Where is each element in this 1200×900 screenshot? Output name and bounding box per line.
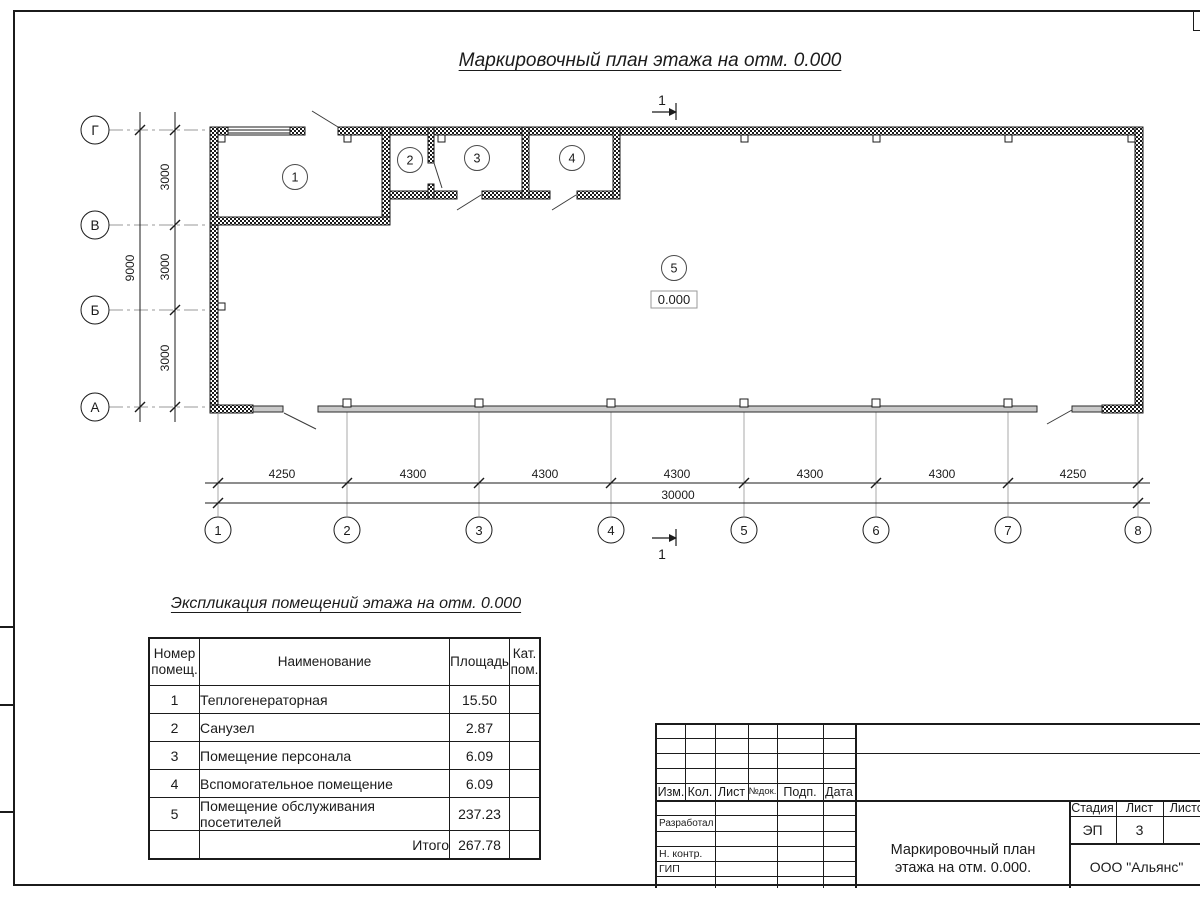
- sheet-value: 3: [1116, 817, 1163, 843]
- wall-segment: [428, 127, 434, 163]
- title-block: Изм. Кол. Лист №док. Подп. Дата Разработ…: [655, 723, 1200, 888]
- col-header-name: Наименование: [200, 638, 450, 686]
- wall-segment: [338, 127, 1143, 135]
- axis-label: 2: [343, 523, 350, 538]
- room-name: Помещение персонала: [200, 742, 450, 770]
- col-header-number: Номер помещ.: [149, 638, 200, 686]
- row-axis-labels: Г В Б А: [90, 123, 99, 415]
- table-row: 4 Вспомогательное помещение 6.09: [149, 770, 540, 798]
- rev-header-podp: Подп.: [777, 783, 823, 800]
- room-area: 15.50: [450, 686, 510, 714]
- window: [228, 127, 290, 135]
- axis-label: 4: [607, 523, 614, 538]
- axis-label: В: [90, 218, 99, 233]
- section-label: 1: [658, 546, 666, 562]
- table-row: 2 Санузел 2.87: [149, 714, 540, 742]
- rev-header-list: Лист: [715, 783, 748, 800]
- axis-label: 8: [1134, 523, 1141, 538]
- room-number: 4: [149, 770, 200, 798]
- dim-label: 3000: [158, 253, 172, 280]
- dim-total-label: 9000: [123, 254, 137, 281]
- wall-segment: [210, 405, 253, 413]
- wall-segment: [210, 127, 218, 413]
- axis-label: 5: [740, 523, 747, 538]
- rev-header-izm: Изм.: [657, 783, 685, 800]
- section-label: 1: [658, 92, 666, 108]
- axis-label: 3: [475, 523, 482, 538]
- role-gip: ГИП: [659, 862, 717, 876]
- door-swing: [284, 413, 316, 429]
- dim-label: 4300: [664, 467, 691, 481]
- wall-segment: [613, 127, 620, 199]
- door-swing: [552, 195, 576, 210]
- table-row: 3 Помещение персонала 6.09: [149, 742, 540, 770]
- room-category: [510, 742, 541, 770]
- wall-segment: [290, 127, 305, 135]
- dim-label: 4300: [400, 467, 427, 481]
- door-swing: [1047, 410, 1072, 424]
- stage-value: ЭП: [1069, 817, 1116, 843]
- section-mark-bottom: [652, 529, 677, 546]
- wall-segment: [390, 191, 457, 199]
- role-developer: Разработал: [659, 816, 715, 831]
- door-swing: [434, 163, 442, 188]
- company-name: ООО "Альянс": [1071, 845, 1200, 888]
- role-ncontrol: Н. контр.: [659, 847, 717, 861]
- wall-segment: [522, 127, 529, 199]
- table-row: 5 Помещение обслуживания посетителей 237…: [149, 798, 540, 831]
- door-swing: [457, 195, 481, 210]
- room-marker: 1: [292, 171, 299, 185]
- col-header-area: Площадь: [450, 638, 510, 686]
- room-number: 1: [149, 686, 200, 714]
- room-marker: 2: [407, 154, 414, 168]
- dimension-labels: 4250 4300 4300 4300 4300 4300 4250 30000…: [123, 163, 1087, 502]
- total-label: Итого: [200, 831, 450, 860]
- axis-label: Б: [91, 303, 100, 318]
- dim-label: 4300: [929, 467, 956, 481]
- room-name: Санузел: [200, 714, 450, 742]
- wall-segment: [1102, 405, 1143, 413]
- elevation-value: 0.000: [658, 292, 691, 307]
- stage-header: Стадия: [1069, 801, 1116, 815]
- elevation-mark: 0.000: [651, 291, 697, 308]
- room-area: 6.09: [450, 742, 510, 770]
- axis-label: 6: [872, 523, 879, 538]
- dim-label: 4250: [1060, 467, 1087, 481]
- room-area: 2.87: [450, 714, 510, 742]
- table-row: 1 Теплогенераторная 15.50: [149, 686, 540, 714]
- room-category: [510, 714, 541, 742]
- axis-label: А: [90, 400, 99, 415]
- room-number: 3: [149, 742, 200, 770]
- document-title: Маркировочный план этажа на отм. 0.000.: [857, 833, 1069, 885]
- room-name: Помещение обслуживания посетителей: [200, 798, 450, 831]
- rev-header-kol: Кол.: [685, 783, 715, 800]
- sheets-header: Листов: [1163, 801, 1200, 815]
- margin-tick: [0, 704, 13, 706]
- table-total-row: Итого 267.78: [149, 831, 540, 860]
- room-marker-bubbles: [283, 146, 687, 281]
- room-area: 6.09: [450, 770, 510, 798]
- room-name: Теплогенераторная: [200, 686, 450, 714]
- wall-segment: [210, 217, 390, 225]
- room-category: [510, 770, 541, 798]
- room-category: [510, 686, 541, 714]
- rev-header-data: Дата: [823, 783, 855, 800]
- dim-label: 4250: [269, 467, 296, 481]
- axis-label: Г: [91, 123, 99, 138]
- schedule-table: Номер помещ. Наименование Площадь Кат. п…: [148, 637, 541, 860]
- room-marker: 3: [474, 152, 481, 166]
- dim-label: 4300: [797, 467, 824, 481]
- room-number: 2: [149, 714, 200, 742]
- dim-label: 3000: [158, 344, 172, 371]
- row-axis-bubbles: [81, 116, 109, 421]
- schedule-header-row: Номер помещ. Наименование Площадь Кат. п…: [149, 638, 540, 686]
- dim-label: 3000: [158, 163, 172, 190]
- col-header-category: Кат. пом.: [510, 638, 541, 686]
- room-name: Вспомогательное помещение: [200, 770, 450, 798]
- empty-cell: [510, 831, 541, 860]
- margin-tick: [0, 626, 13, 628]
- room-category: [510, 798, 541, 831]
- wall-segment: [428, 184, 434, 199]
- total-area: 267.78: [450, 831, 510, 860]
- room-marker: 4: [569, 152, 576, 166]
- empty-cell: [149, 831, 200, 860]
- margin-tick: [0, 811, 13, 813]
- wall-segment: [382, 127, 390, 225]
- dim-total-label: 30000: [661, 488, 695, 502]
- floor-plan: Г В Б А 1 2 3 4 5 6 7 8 4250 4300 4300 4…: [0, 0, 1200, 580]
- room-marker: 5: [671, 262, 678, 276]
- dim-label: 4300: [532, 467, 559, 481]
- room-area: 237.23: [450, 798, 510, 831]
- schedule-title: Экспликация помещений этажа на отм. 0.00…: [150, 595, 542, 613]
- room-number: 5: [149, 798, 200, 831]
- wall-segment: [1135, 127, 1143, 413]
- rev-header-doc: №док.: [748, 783, 777, 800]
- door-swing: [312, 111, 338, 127]
- axis-label: 1: [214, 523, 221, 538]
- wall-segment: [482, 191, 550, 199]
- sheet-header: Лист: [1116, 801, 1163, 815]
- axis-label: 7: [1004, 523, 1011, 538]
- storefront-glazing: [253, 406, 1102, 412]
